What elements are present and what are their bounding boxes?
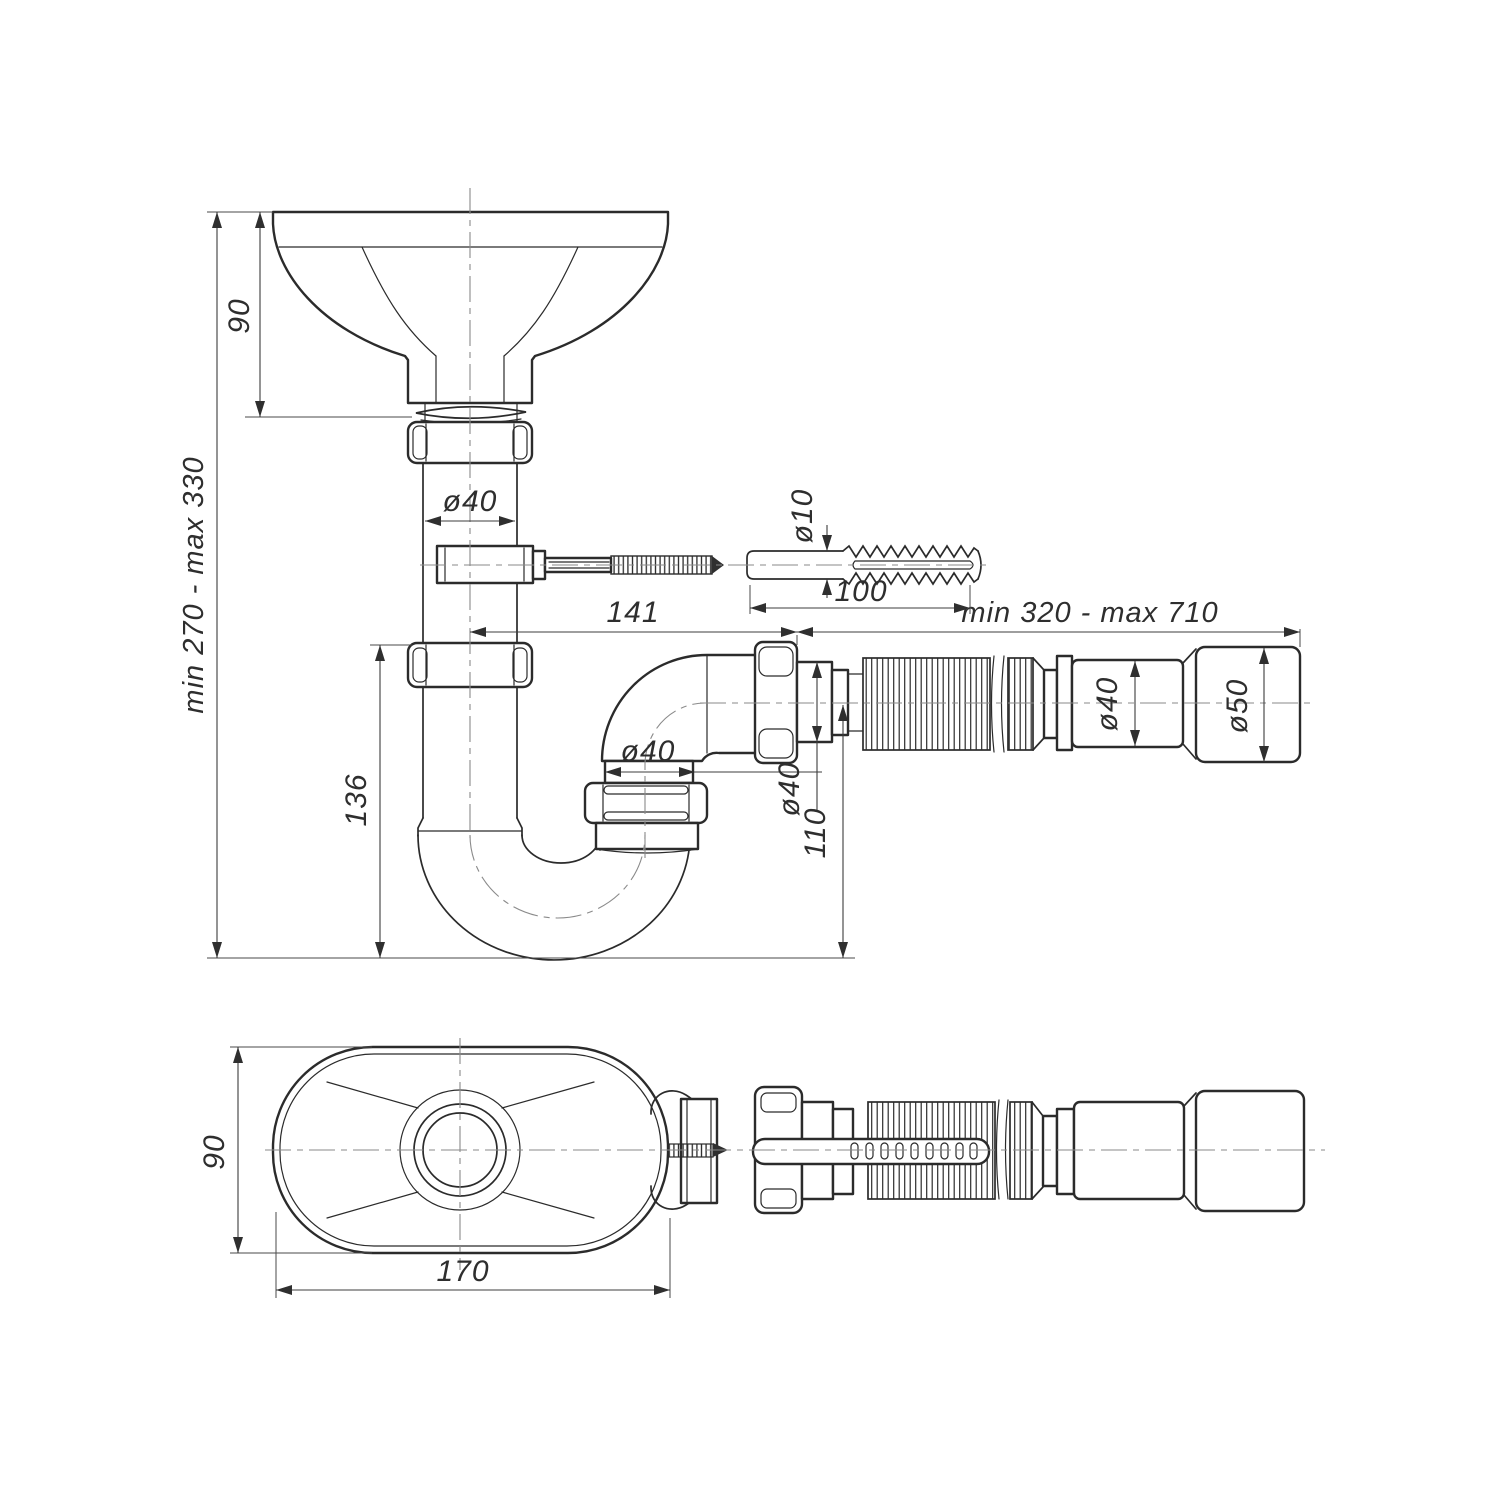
dim-funnel-height-label: 90 [223,298,256,333]
dim-trap-width-label: 141 [606,596,659,629]
dim-overall-height-label: min 270 - max 330 [178,456,210,713]
dim-oval-length-label: 170 [436,1255,489,1288]
siphon-drawing: 90 min 270 - max 330 136 ø40 [0,0,1500,1500]
dim-flex-length-label: min 320 - max 710 [961,597,1218,629]
dim-plug-length-label: 100 [834,575,887,608]
dim-oval-width-label: 90 [198,1134,231,1169]
dim-plug-diameter-label: ø10 [786,489,819,544]
dim-outlet-height-label: 110 [799,808,832,859]
dim-end-diameter-label: ø50 [1221,679,1254,734]
dim-connector-diameter-label: ø40 [1091,677,1124,732]
dim-trap-diameter-label: ø40 [621,735,676,768]
technical-drawing-page: 90 min 270 - max 330 136 ø40 [0,0,1500,1500]
dim-inlet-diameter-label: ø40 [443,485,498,518]
dim-trap-depth-label: 136 [340,773,373,826]
plan-wall-plug-strap [753,1139,989,1164]
